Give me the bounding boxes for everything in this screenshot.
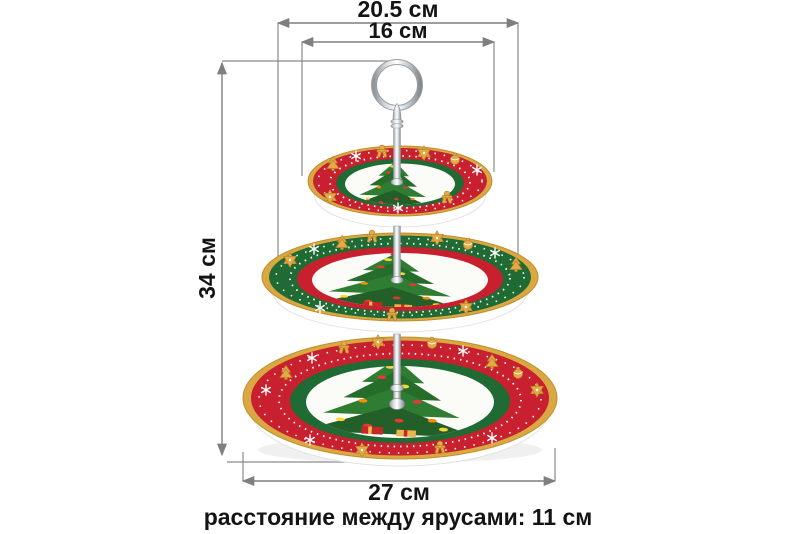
product-dimension-diagram: 20.5 см 16 см 34 см 27 см расстояние меж…: [0, 0, 800, 534]
collar-knot: [391, 124, 404, 129]
dimension-diagram-canvas: 20.5 см 16 см 34 см 27 см расстояние меж…: [0, 0, 800, 534]
cake-stand: [243, 62, 557, 466]
pole-segment: [394, 128, 401, 182]
pole-ferrule: [391, 179, 403, 186]
pole-ferrule: [391, 277, 403, 284]
pole-ferrule: [391, 384, 404, 391]
ring-icon: [374, 62, 420, 108]
pole-finial: [390, 399, 405, 410]
dimension-label-top-tier: 16 см: [368, 18, 427, 43]
dimension-label-bottom-tier: 27 см: [368, 479, 430, 505]
collar-knot: [391, 119, 404, 124]
tier-spacing-note: расстояние между ярусами: 11 см: [204, 504, 593, 530]
handle-ring: [374, 62, 420, 128]
pole-segment: [394, 226, 401, 280]
dimension-label-height: 34 см: [194, 237, 220, 299]
